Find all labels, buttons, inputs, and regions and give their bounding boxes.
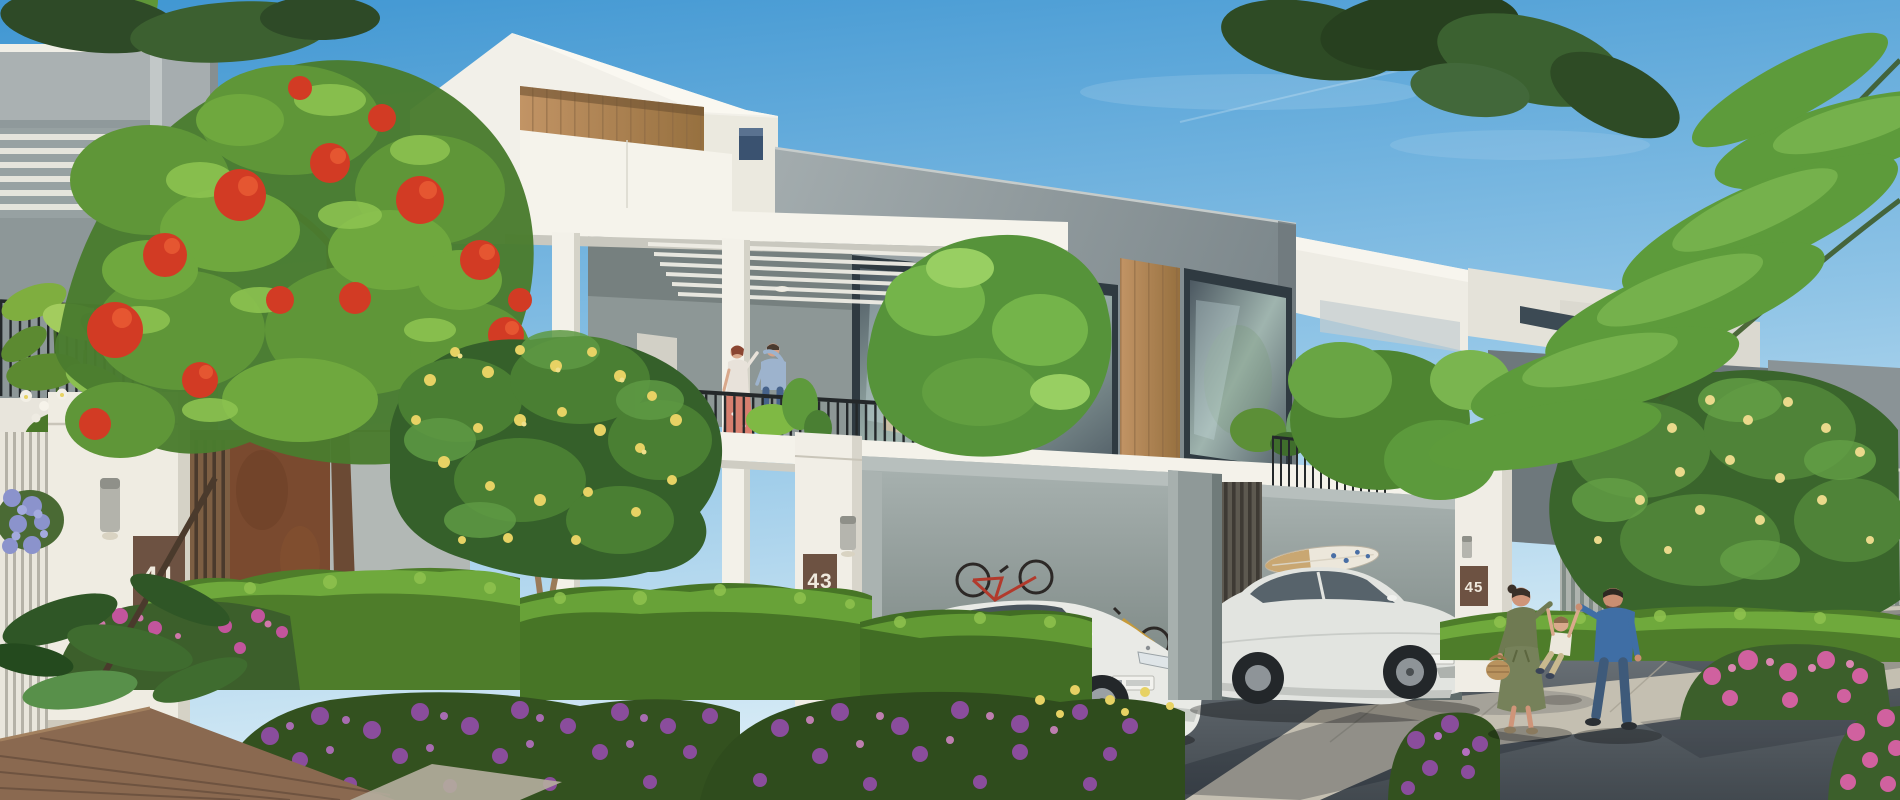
sconce-45	[1462, 536, 1472, 558]
sconce-41	[100, 478, 120, 540]
bmw-front-wheel	[1383, 645, 1437, 699]
scene-canvas: 43 45	[0, 0, 1900, 800]
bmw-rear-wheel	[1232, 652, 1284, 704]
house-number-45: 45	[1465, 579, 1484, 596]
carport-divider-pillar	[1168, 470, 1222, 700]
tesla-badge	[1146, 646, 1150, 650]
townhouse-render: 43 45	[0, 0, 1900, 800]
